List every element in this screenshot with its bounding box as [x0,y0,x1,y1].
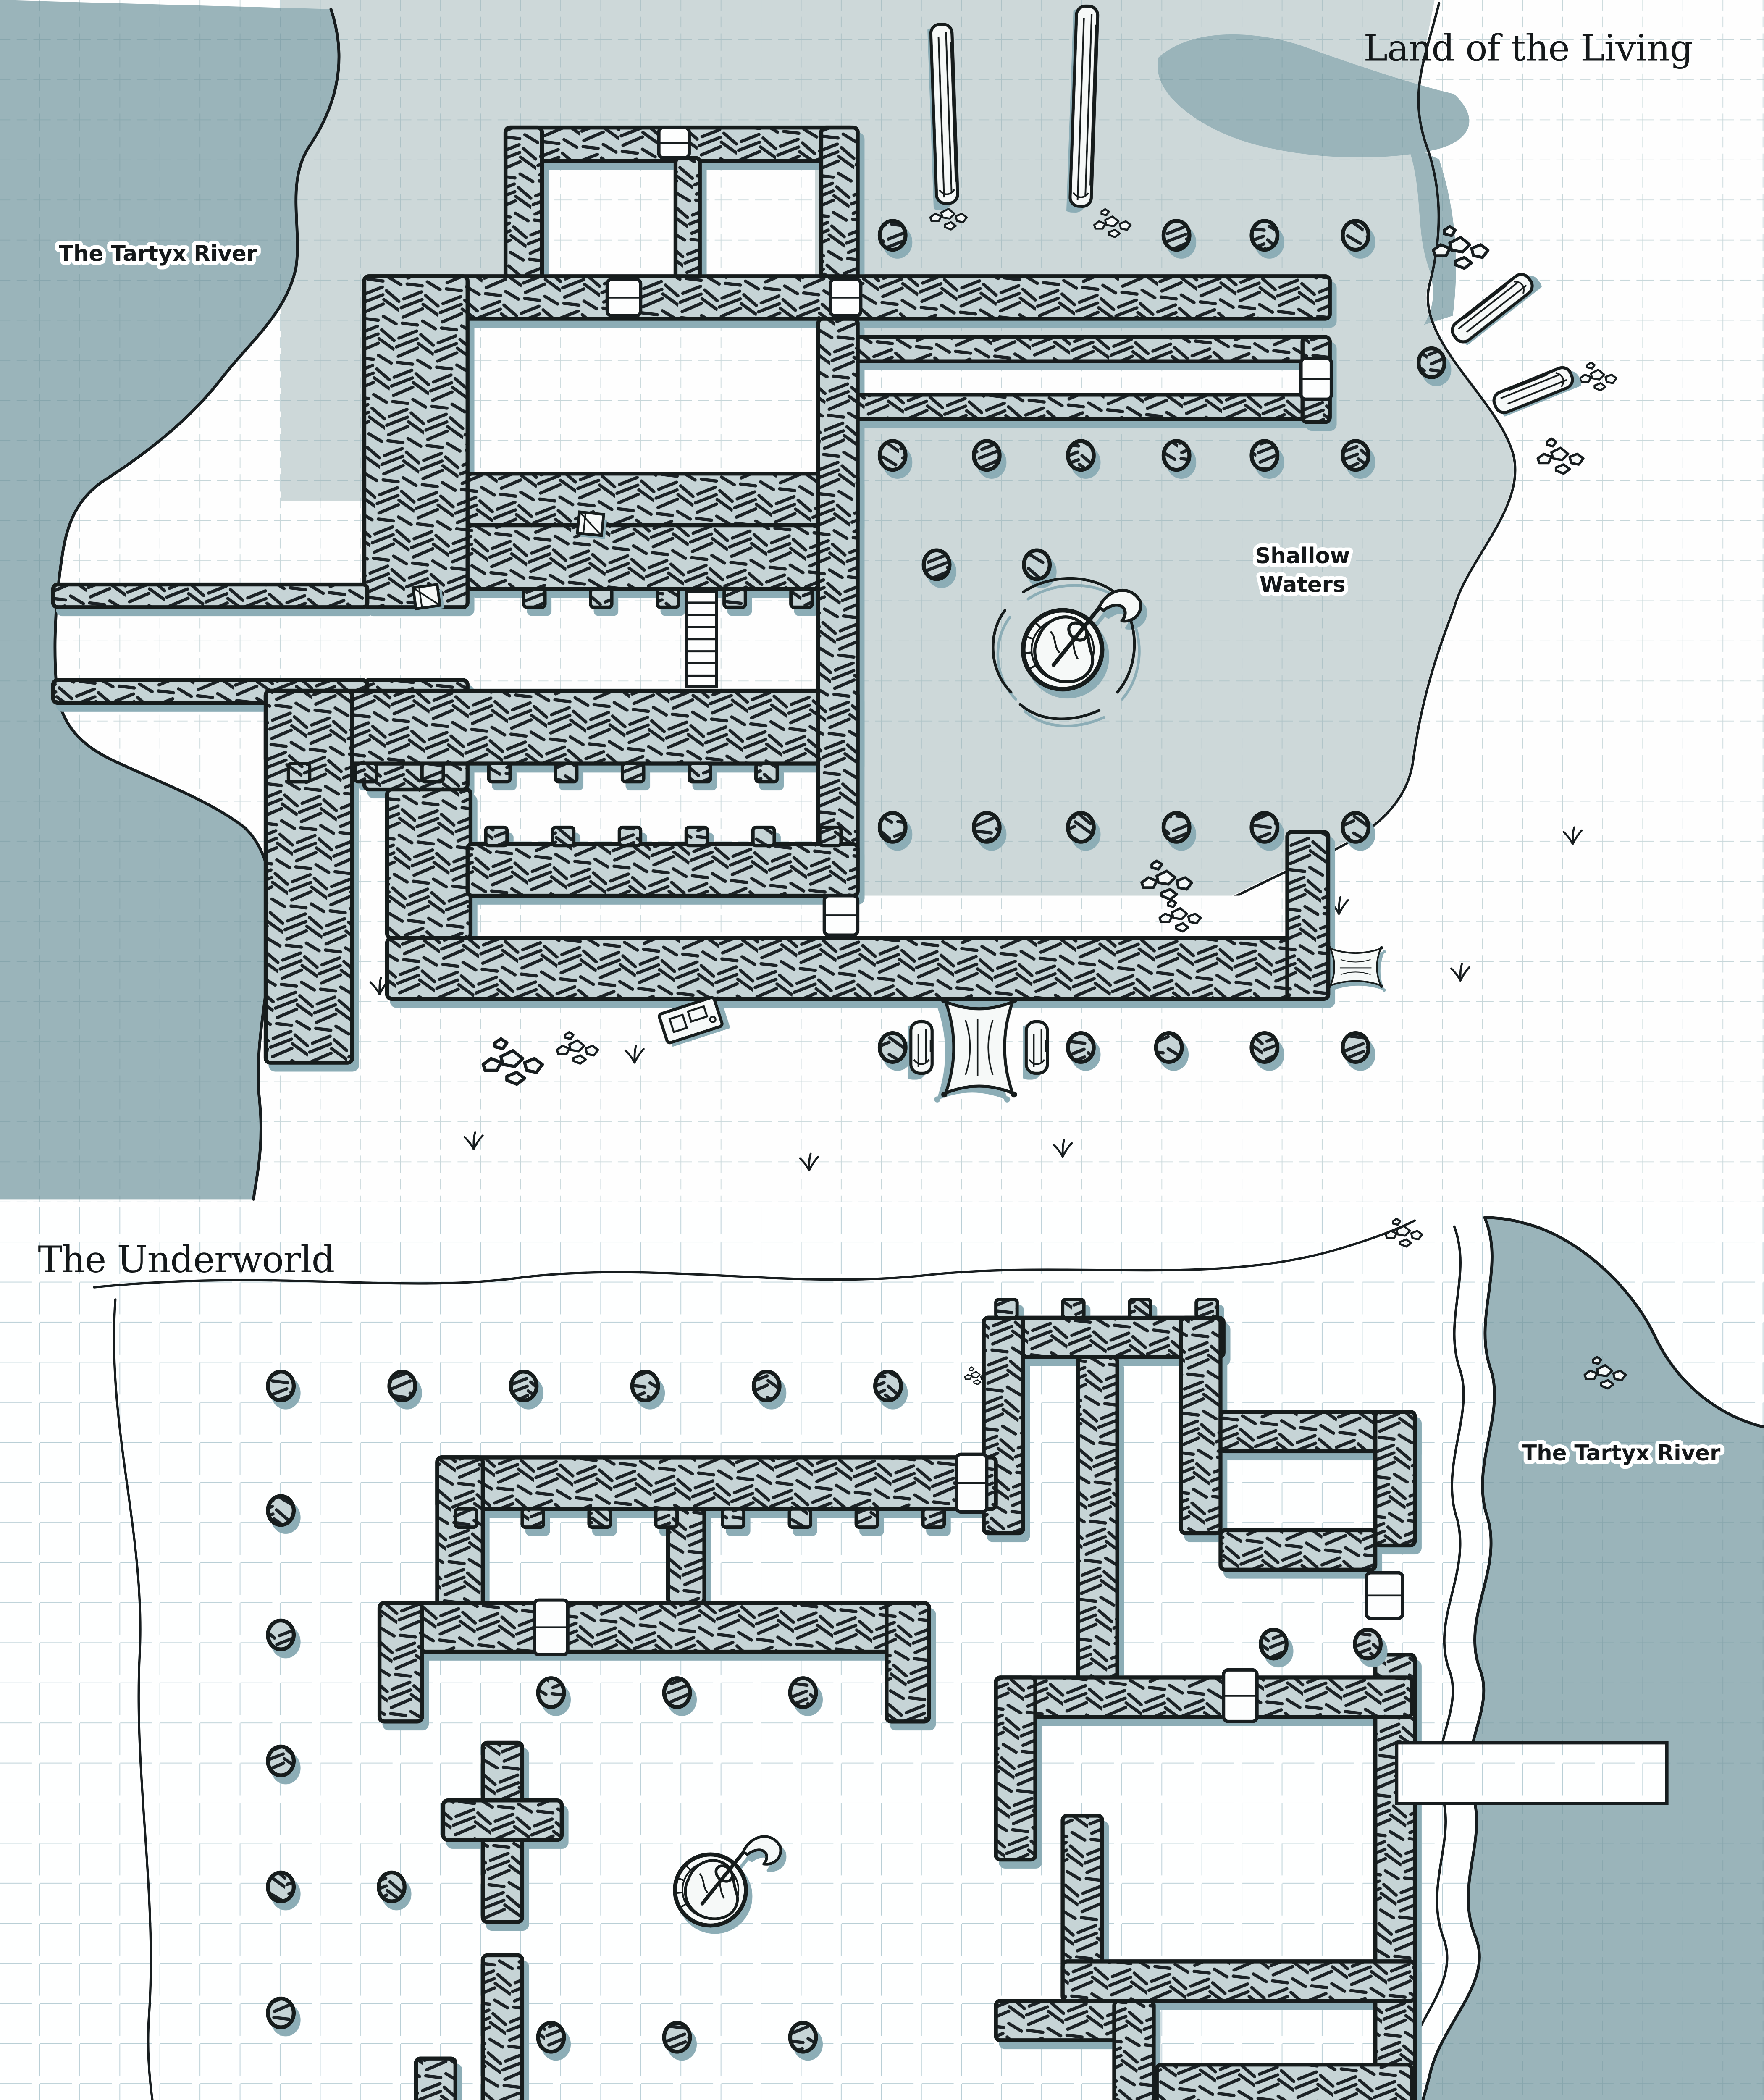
bottom-map-title: The Underworld [38,1239,334,1281]
door-icon [607,279,641,316]
stone-pillar-icon [1163,221,1189,250]
stone-pillar-icon [790,1678,816,1707]
dungeon-floor [467,589,818,692]
stone-pillar-icon [924,550,949,579]
crate-icon [413,584,440,609]
door-icon [824,896,858,935]
door-icon [1301,358,1331,399]
shallow-waters-label-line1: Shallow [1255,543,1350,569]
stairs-icon [686,592,717,686]
bottom-river-label: The Tartyx River [1522,1441,1721,1466]
stone-pillar-icon [1024,550,1050,579]
stone-pillar-icon [1252,813,1277,842]
stone-pillar-icon [880,221,906,250]
stone-pillar-icon [1252,441,1277,470]
fallen-column-icon [911,1022,932,1074]
tent-awning-icon [941,997,1017,1098]
land-of-the-living-map: Land of the Living The Tartyx River Shal… [0,0,1764,1202]
stone-pillar-icon [268,1998,294,2027]
stone-pillar-icon [664,1678,690,1707]
stone-pillar-icon [1343,813,1368,842]
stone-pillar-icon [1419,349,1444,378]
door-icon [659,128,689,158]
stone-pillar-icon [268,1620,294,1649]
stone-pillar-icon [754,1372,780,1401]
dungeon-floor [352,764,387,1063]
stone-pillar-icon [1068,441,1094,470]
dungeon-floor [827,361,1306,395]
stone-pillar-icon [1343,441,1368,470]
door-icon [956,1454,987,1512]
stone-pillar-icon [1252,1033,1277,1062]
stone-pillar-icon [268,1496,294,1525]
stone-pillar-icon [974,813,1000,842]
dungeon-floor [467,319,818,477]
stone-dock [1396,1743,1667,1803]
door-icon [1366,1573,1403,1618]
stone-pillar-icon [511,1372,536,1401]
fallen-column-icon [1026,1022,1047,1074]
dungeon-floor [73,607,470,680]
stone-pillar-icon [1343,221,1368,250]
stone-pillar-icon [538,1678,564,1707]
stone-pillar-icon [1068,813,1094,842]
stone-pillar-icon [880,813,906,842]
stone-pillar-icon [268,1872,294,1901]
stone-pillar-icon [538,2023,564,2052]
stone-pillar-icon [268,1746,294,1775]
stone-pillar-icon [1068,1033,1094,1062]
stone-pillar-icon [880,1033,906,1062]
stone-pillar-icon [1163,441,1189,470]
underworld-map: The Underworld The Tartyx River 1 square… [0,1207,1764,2100]
door-icon [830,279,861,316]
top-map-title: Land of the Living [1363,27,1693,70]
stone-pillar-icon [1343,1033,1368,1062]
stone-pillar-icon [880,441,906,470]
stone-pillar-icon [790,2023,816,2052]
stone-pillar-icon [1355,1630,1381,1659]
stone-pillar-icon [1156,1033,1181,1062]
shallow-waters-label-line2: Waters [1260,572,1346,598]
crate-icon [577,512,604,535]
stone-pillar-icon [664,2023,690,2052]
top-river-label: The Tartyx River [59,241,257,267]
door-icon [1223,1670,1257,1722]
stone-pillar-icon [389,1372,415,1401]
stone-pillar-icon [1261,1630,1286,1659]
stone-pillar-icon [632,1372,658,1401]
stone-pillar-icon [1163,813,1189,842]
stone-pillar-icon [268,1372,294,1401]
tent-awning-icon [1328,946,1383,988]
fallen-column-icon [930,24,958,204]
battle-map-canvas: Land of the Living The Tartyx River Shal… [0,0,1764,2100]
stone-pillar-icon [974,441,1000,470]
door-icon [534,1600,568,1655]
stone-pillar-icon [379,1872,404,1901]
stone-pillar-icon [875,1372,901,1401]
stone-pillar-icon [1252,221,1277,250]
